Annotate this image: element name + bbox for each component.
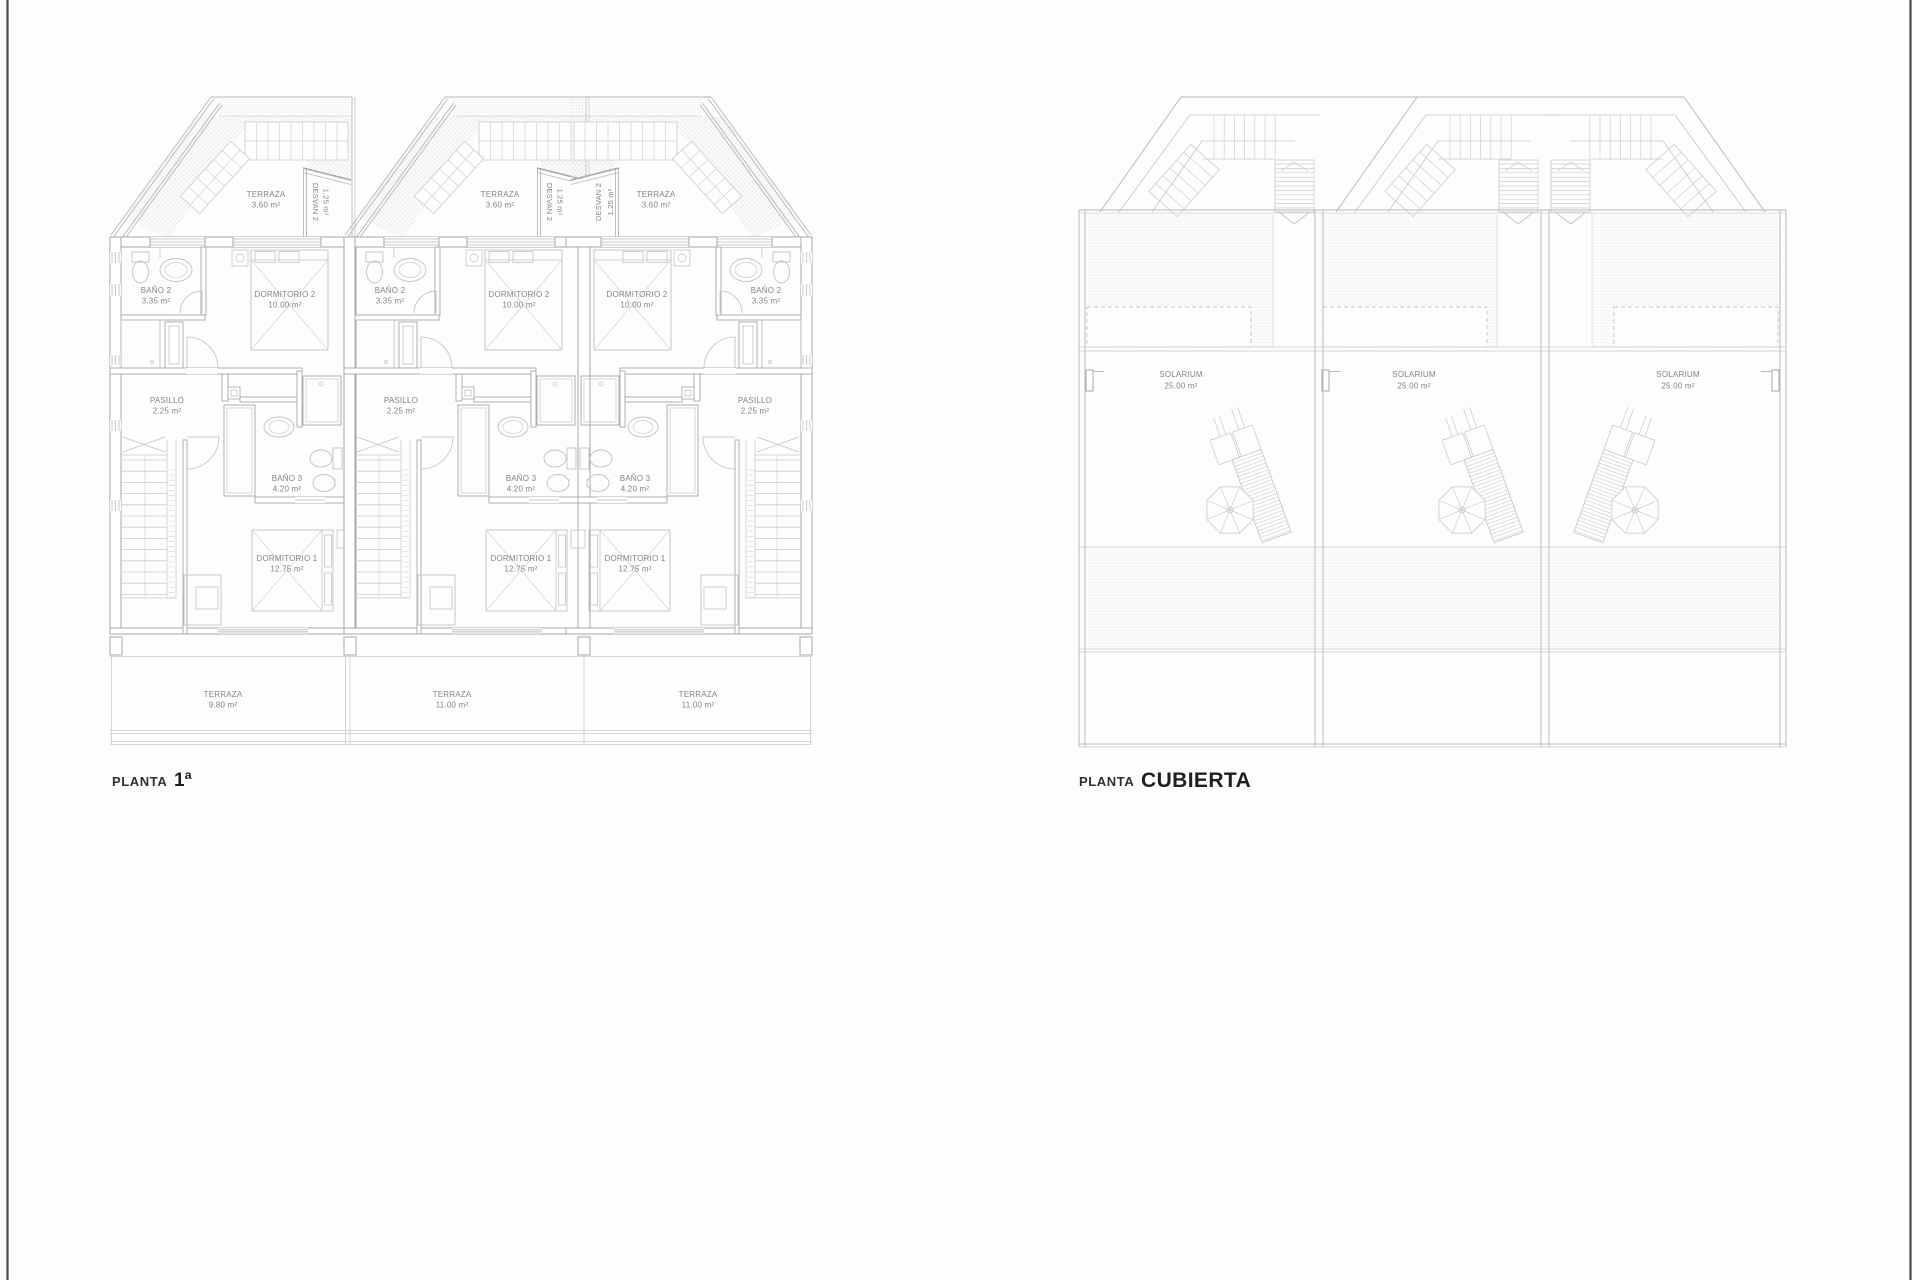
svg-text:BAÑO 3: BAÑO 3 <box>620 474 651 483</box>
svg-text:25.00 m²: 25.00 m² <box>1397 382 1430 391</box>
svg-text:PLANTA: PLANTA <box>1079 774 1134 789</box>
svg-text:TERRAZA: TERRAZA <box>679 690 718 699</box>
svg-text:DORMITORIO 1: DORMITORIO 1 <box>491 554 552 563</box>
svg-text:10.00 m²: 10.00 m² <box>620 301 653 310</box>
svg-text:PASILLO: PASILLO <box>738 396 772 405</box>
svg-text:3.60 m²: 3.60 m² <box>486 201 515 210</box>
svg-text:2.25 m²: 2.25 m² <box>153 407 182 416</box>
svg-text:BAÑO 2: BAÑO 2 <box>375 286 406 295</box>
svg-text:2.25 m²: 2.25 m² <box>741 407 770 416</box>
svg-text:BAÑO 2: BAÑO 2 <box>141 286 172 295</box>
svg-text:BAÑO 2: BAÑO 2 <box>751 286 782 295</box>
svg-text:3.60 m²: 3.60 m² <box>252 201 281 210</box>
svg-text:SOLARIUM: SOLARIUM <box>1159 370 1203 379</box>
svg-text:1.25 m²: 1.25 m² <box>556 189 565 216</box>
svg-text:SOLARIUM: SOLARIUM <box>1656 370 1700 379</box>
svg-text:TERRAZA: TERRAZA <box>433 690 472 699</box>
svg-text:TERRAZA: TERRAZA <box>247 190 286 199</box>
svg-text:4.20 m²: 4.20 m² <box>507 485 536 494</box>
svg-text:3.60 m²: 3.60 m² <box>642 201 671 210</box>
svg-text:11.00 m²: 11.00 m² <box>682 701 715 710</box>
svg-text:12.75 m²: 12.75 m² <box>618 565 651 574</box>
svg-text:3.35 m²: 3.35 m² <box>142 297 171 306</box>
svg-text:PASILLO: PASILLO <box>150 396 184 405</box>
svg-text:1.25 m²: 1.25 m² <box>606 188 615 215</box>
svg-text:12.75 m²: 12.75 m² <box>270 565 303 574</box>
svg-text:3.35 m²: 3.35 m² <box>376 297 405 306</box>
svg-text:1ª: 1ª <box>174 770 193 791</box>
svg-text:DESVAN 2: DESVAN 2 <box>311 183 320 221</box>
svg-text:12.75 m²: 12.75 m² <box>504 565 537 574</box>
svg-text:PLANTA: PLANTA <box>112 774 167 789</box>
svg-text:CUBIERTA: CUBIERTA <box>1141 769 1251 792</box>
svg-text:DESVAN 2: DESVAN 2 <box>545 183 554 221</box>
svg-text:11.00 m²: 11.00 m² <box>436 701 469 710</box>
svg-text:DORMITORIO 2: DORMITORIO 2 <box>489 290 550 299</box>
svg-text:PASILLO: PASILLO <box>384 396 418 405</box>
svg-text:3.35 m²: 3.35 m² <box>752 297 781 306</box>
svg-text:DORMITORIO 1: DORMITORIO 1 <box>605 554 666 563</box>
svg-text:4.20 m²: 4.20 m² <box>273 485 302 494</box>
svg-text:1.25 m²: 1.25 m² <box>322 189 331 216</box>
svg-text:TERRAZA: TERRAZA <box>204 690 243 699</box>
svg-text:25.00 m²: 25.00 m² <box>1164 382 1197 391</box>
svg-text:9.80 m²: 9.80 m² <box>209 701 238 710</box>
svg-text:10.00 m²: 10.00 m² <box>268 301 301 310</box>
svg-text:DESVAN 2: DESVAN 2 <box>594 183 603 221</box>
svg-text:TERRAZA: TERRAZA <box>481 190 520 199</box>
svg-text:DORMITORIO 2: DORMITORIO 2 <box>607 290 668 299</box>
svg-text:2.25 m²: 2.25 m² <box>387 407 416 416</box>
svg-text:BAÑO 3: BAÑO 3 <box>272 474 303 483</box>
svg-text:25.00 m²: 25.00 m² <box>1661 382 1694 391</box>
svg-text:BAÑO 3: BAÑO 3 <box>506 474 537 483</box>
svg-text:DORMITORIO 2: DORMITORIO 2 <box>255 290 316 299</box>
svg-text:SOLARIUM: SOLARIUM <box>1392 370 1436 379</box>
svg-text:TERRAZA: TERRAZA <box>637 190 676 199</box>
svg-text:10.00 m²: 10.00 m² <box>502 301 535 310</box>
svg-text:DORMITORIO 1: DORMITORIO 1 <box>257 554 318 563</box>
svg-text:4.20 m²: 4.20 m² <box>621 485 650 494</box>
